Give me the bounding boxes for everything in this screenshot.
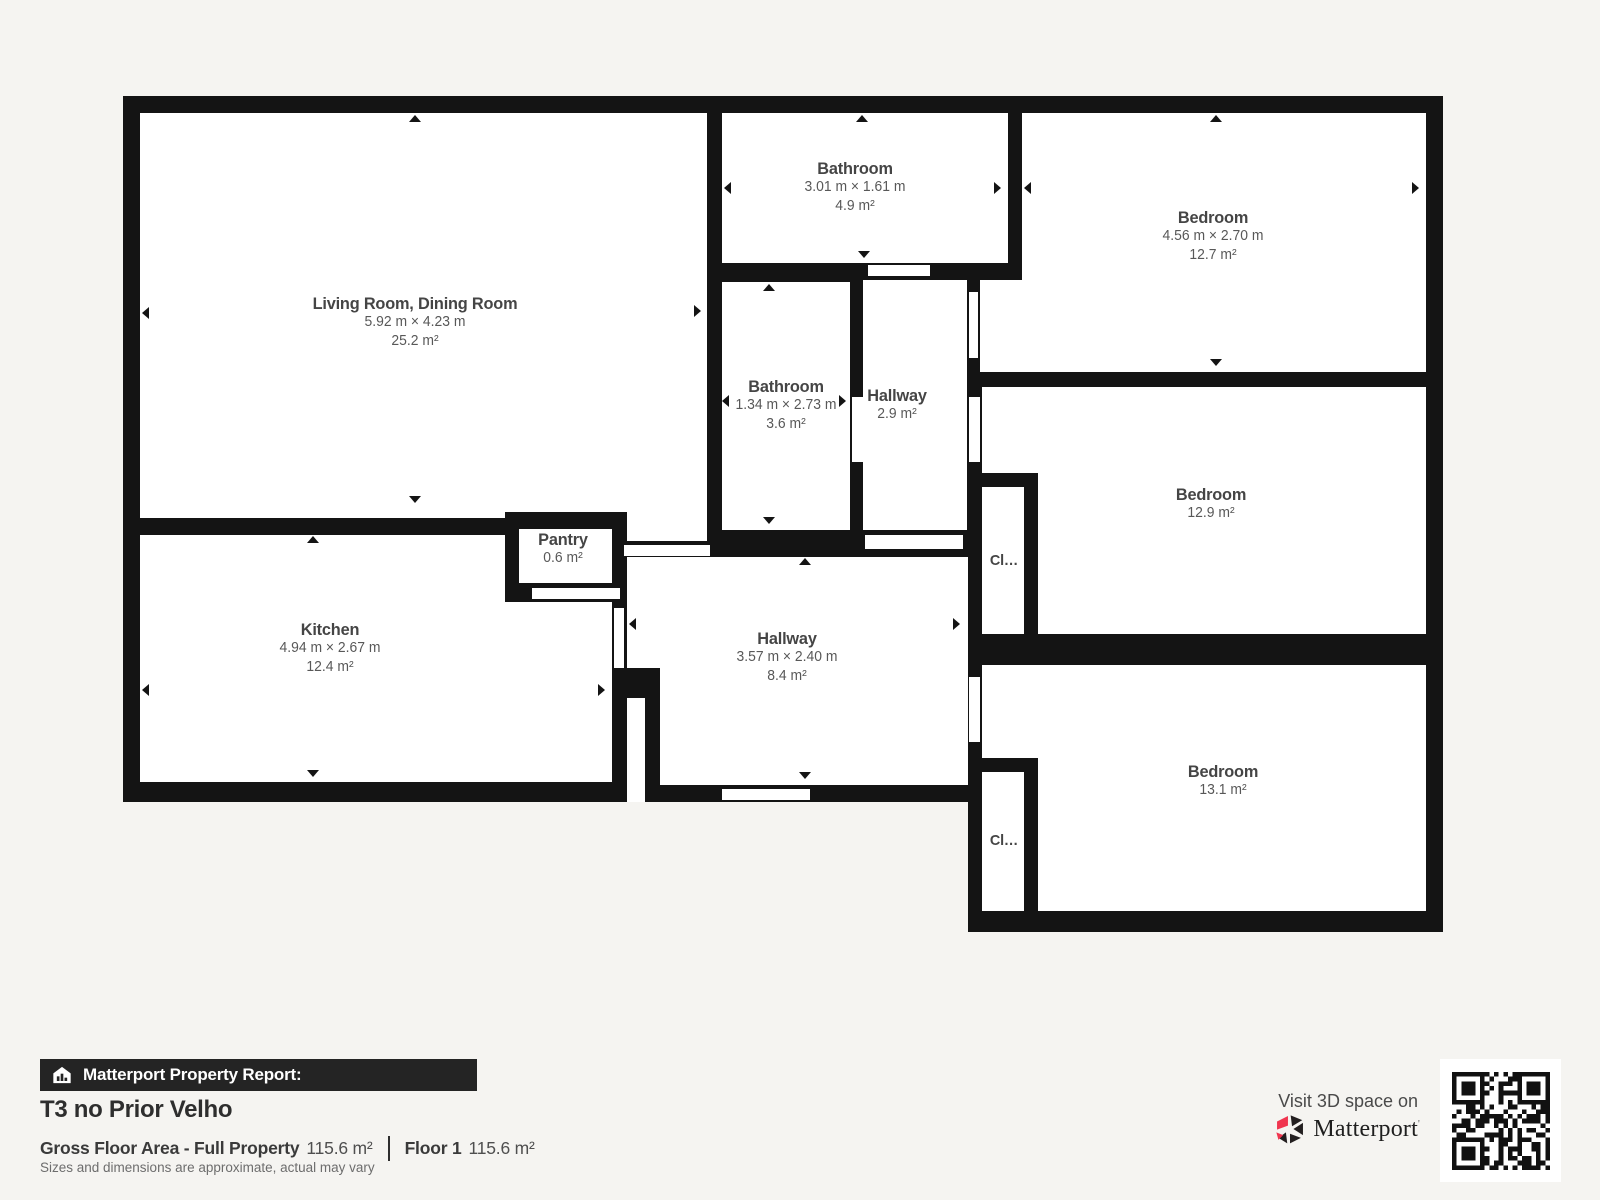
- property-title: T3 no Prior Velho: [40, 1096, 232, 1124]
- room-label-kitchen: Kitchen 4.94 m × 2.67 m 12.4 m²: [280, 620, 381, 677]
- room-label-pantry: Pantry 0.6 m²: [538, 530, 588, 568]
- wall-closet-upper-right: [1024, 473, 1038, 634]
- measure-arrow-icon: [629, 618, 636, 630]
- measure-arrow-icon: [799, 558, 811, 565]
- measure-arrow-icon: [763, 517, 775, 524]
- gross-floor-area-label: Gross Floor Area - Full Property: [40, 1138, 299, 1159]
- measure-arrow-icon: [722, 395, 729, 407]
- matterport-logo-icon: [1275, 1114, 1305, 1144]
- measure-arrow-icon: [858, 251, 870, 258]
- door-hallway-main-bedroom-bottom: [969, 677, 980, 742]
- door-bathroom-top-hallway: [868, 265, 930, 276]
- room-label-bathroom-top: Bathroom 3.01 m × 1.61 m 4.9 m²: [805, 159, 906, 216]
- floor-label: Floor 1: [405, 1138, 462, 1159]
- wall-closet-lower-right: [1024, 758, 1038, 911]
- measure-arrow-icon: [1210, 115, 1222, 122]
- room-name: Hallway: [737, 629, 838, 648]
- gross-floor-area-value: 115.6 m²: [306, 1138, 372, 1159]
- measure-arrow-icon: [1412, 182, 1419, 194]
- room-label-bedroom-top: Bedroom 4.56 m × 2.70 m 12.7 m²: [1163, 208, 1264, 265]
- room-label-closet-upper: Cl…: [990, 551, 1018, 570]
- room-name: Bedroom: [1176, 485, 1246, 504]
- room-bedroom-top-extension: [980, 280, 1022, 372]
- disclaimer-text: Sizes and dimensions are approximate, ac…: [40, 1160, 375, 1175]
- measure-arrow-icon: [839, 395, 846, 407]
- room-area: 12.9 m²: [1176, 504, 1246, 523]
- floor-area-summary: Gross Floor Area - Full Property 115.6 m…: [40, 1136, 535, 1161]
- report-banner-label: Matterport Property Report:: [83, 1065, 301, 1085]
- door-pantry-south: [532, 588, 620, 599]
- room-dimensions: 4.94 m × 2.67 m: [280, 639, 381, 658]
- room-name: Bedroom: [1163, 208, 1264, 227]
- measure-arrow-icon: [763, 284, 775, 291]
- visit-3d-text: Visit 3D space on: [1278, 1091, 1418, 1112]
- door-kitchen-hallway: [614, 608, 624, 668]
- door-hallway-small-hallway-main: [865, 535, 963, 549]
- measure-arrow-icon: [724, 182, 731, 194]
- wall-notch-bottom: [627, 698, 645, 802]
- room-area: 13.1 m²: [1188, 781, 1258, 800]
- room-name: Living Room, Dining Room: [313, 294, 518, 313]
- room-name: Bathroom: [805, 159, 906, 178]
- room-name: Cl…: [990, 831, 1018, 850]
- floor-area-value: 115.6 m²: [469, 1138, 535, 1159]
- room-area: 8.4 m²: [737, 667, 838, 686]
- room-label-bathroom-middle: Bathroom 1.34 m × 2.73 m 3.6 m²: [736, 377, 837, 434]
- measure-arrow-icon: [856, 115, 868, 122]
- measure-arrow-icon: [142, 307, 149, 319]
- measure-arrow-icon: [953, 618, 960, 630]
- room-dimensions: 3.57 m × 2.40 m: [737, 648, 838, 667]
- measure-arrow-icon: [694, 305, 701, 317]
- room-dimensions: 4.56 m × 2.70 m: [1163, 227, 1264, 246]
- divider: [388, 1136, 390, 1161]
- room-dimensions: 1.34 m × 2.73 m: [736, 396, 837, 415]
- measure-arrow-icon: [307, 770, 319, 777]
- measure-arrow-icon: [307, 536, 319, 543]
- room-label-bedroom-middle: Bedroom 12.9 m²: [1176, 485, 1246, 523]
- room-living-extension: [627, 518, 707, 541]
- room-dimensions: 5.92 m × 4.23 m: [313, 313, 518, 332]
- matterport-wordmark: Matterport': [1313, 1116, 1420, 1143]
- room-dimensions: 3.01 m × 1.61 m: [805, 178, 906, 197]
- measure-arrow-icon: [142, 684, 149, 696]
- door-hallway-small-bedroom-top: [969, 292, 978, 358]
- door-pantry-east: [624, 545, 710, 556]
- matterport-brand: Matterport': [1275, 1114, 1420, 1144]
- room-label-closet-lower: Cl…: [990, 831, 1018, 850]
- room-label-hallway-small: Hallway 2.9 m²: [867, 386, 926, 424]
- room-name: Bathroom: [736, 377, 837, 396]
- room-label-bedroom-bottom: Bedroom 13.1 m²: [1188, 762, 1258, 800]
- room-area: 12.4 m²: [280, 658, 381, 677]
- qr-code: [1452, 1072, 1550, 1170]
- room-area: 0.6 m²: [538, 549, 588, 568]
- report-banner: Matterport Property Report:: [40, 1059, 477, 1091]
- room-name: Kitchen: [280, 620, 381, 639]
- door-hallway-small-bathroom: [852, 397, 863, 462]
- measure-arrow-icon: [994, 182, 1001, 194]
- qr-code-panel: [1440, 1059, 1561, 1182]
- room-name: Hallway: [867, 386, 926, 405]
- room-label-hallway-main: Hallway 3.57 m × 2.40 m 8.4 m²: [737, 629, 838, 686]
- room-area: 25.2 m²: [313, 332, 518, 351]
- room-area: 3.6 m²: [736, 415, 837, 434]
- room-area: 12.7 m²: [1163, 246, 1264, 265]
- room-label-living: Living Room, Dining Room 5.92 m × 4.23 m…: [313, 294, 518, 351]
- measure-arrow-icon: [409, 115, 421, 122]
- room-name: Pantry: [538, 530, 588, 549]
- house-icon: [52, 1065, 72, 1085]
- room-name: Cl…: [990, 551, 1018, 570]
- measure-arrow-icon: [799, 772, 811, 779]
- measure-arrow-icon: [1210, 359, 1222, 366]
- floor-plan: Living Room, Dining Room 5.92 m × 4.23 m…: [123, 96, 1443, 932]
- room-area: 2.9 m²: [867, 405, 926, 424]
- measure-arrow-icon: [598, 684, 605, 696]
- measure-arrow-icon: [1024, 182, 1031, 194]
- room-area: 4.9 m²: [805, 197, 906, 216]
- measure-arrow-icon: [409, 496, 421, 503]
- room-name: Bedroom: [1188, 762, 1258, 781]
- door-hallway-small-bedroom-middle: [969, 397, 980, 462]
- door-entrance: [722, 789, 810, 800]
